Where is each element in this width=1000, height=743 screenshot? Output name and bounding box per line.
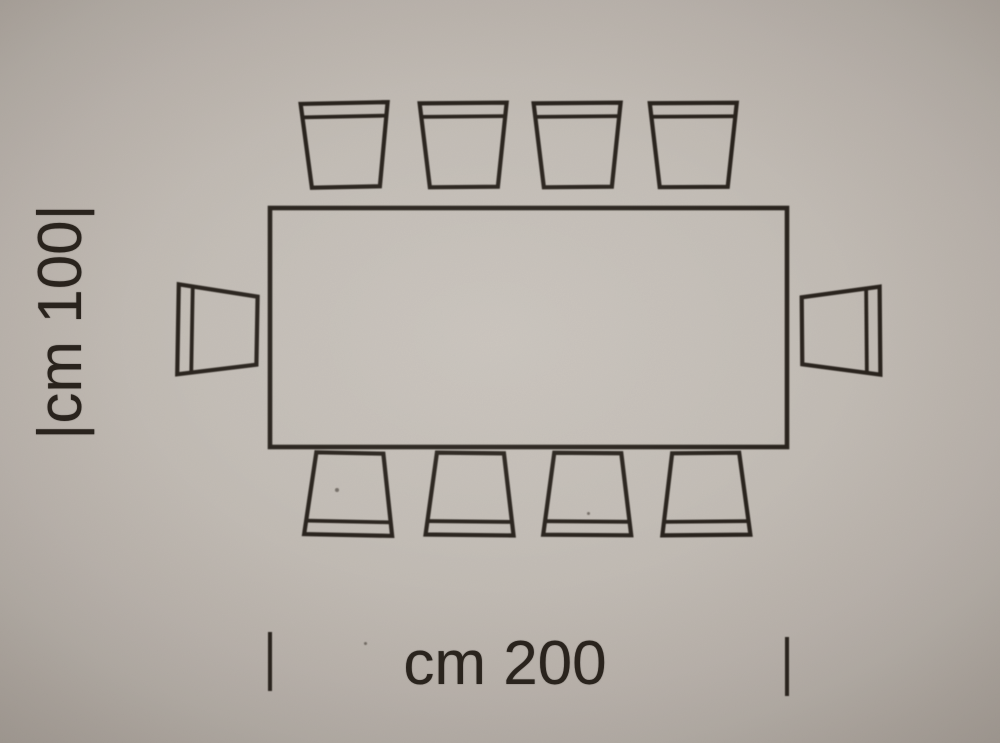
table-top (270, 208, 787, 447)
chair-top-3 (534, 103, 622, 188)
photographed-dimension-diagram: |cm 100| cm 200 (0, 0, 1000, 743)
chair-top-1 (301, 102, 390, 188)
chairs-group (177, 102, 880, 536)
chair-top-4 (650, 103, 737, 187)
chair-bottom-2 (426, 453, 515, 536)
chair-left-1 (177, 284, 258, 375)
chair-bottom-3 (543, 453, 632, 536)
paper-speck (364, 642, 367, 645)
paper-speck (335, 488, 339, 492)
paper-speck (587, 512, 590, 515)
table-plan-drawing (0, 0, 1000, 743)
chair-top-2 (420, 103, 508, 188)
chair-bottom-1 (304, 452, 394, 536)
chair-right-1 (802, 287, 881, 376)
chair-bottom-4 (662, 453, 751, 536)
